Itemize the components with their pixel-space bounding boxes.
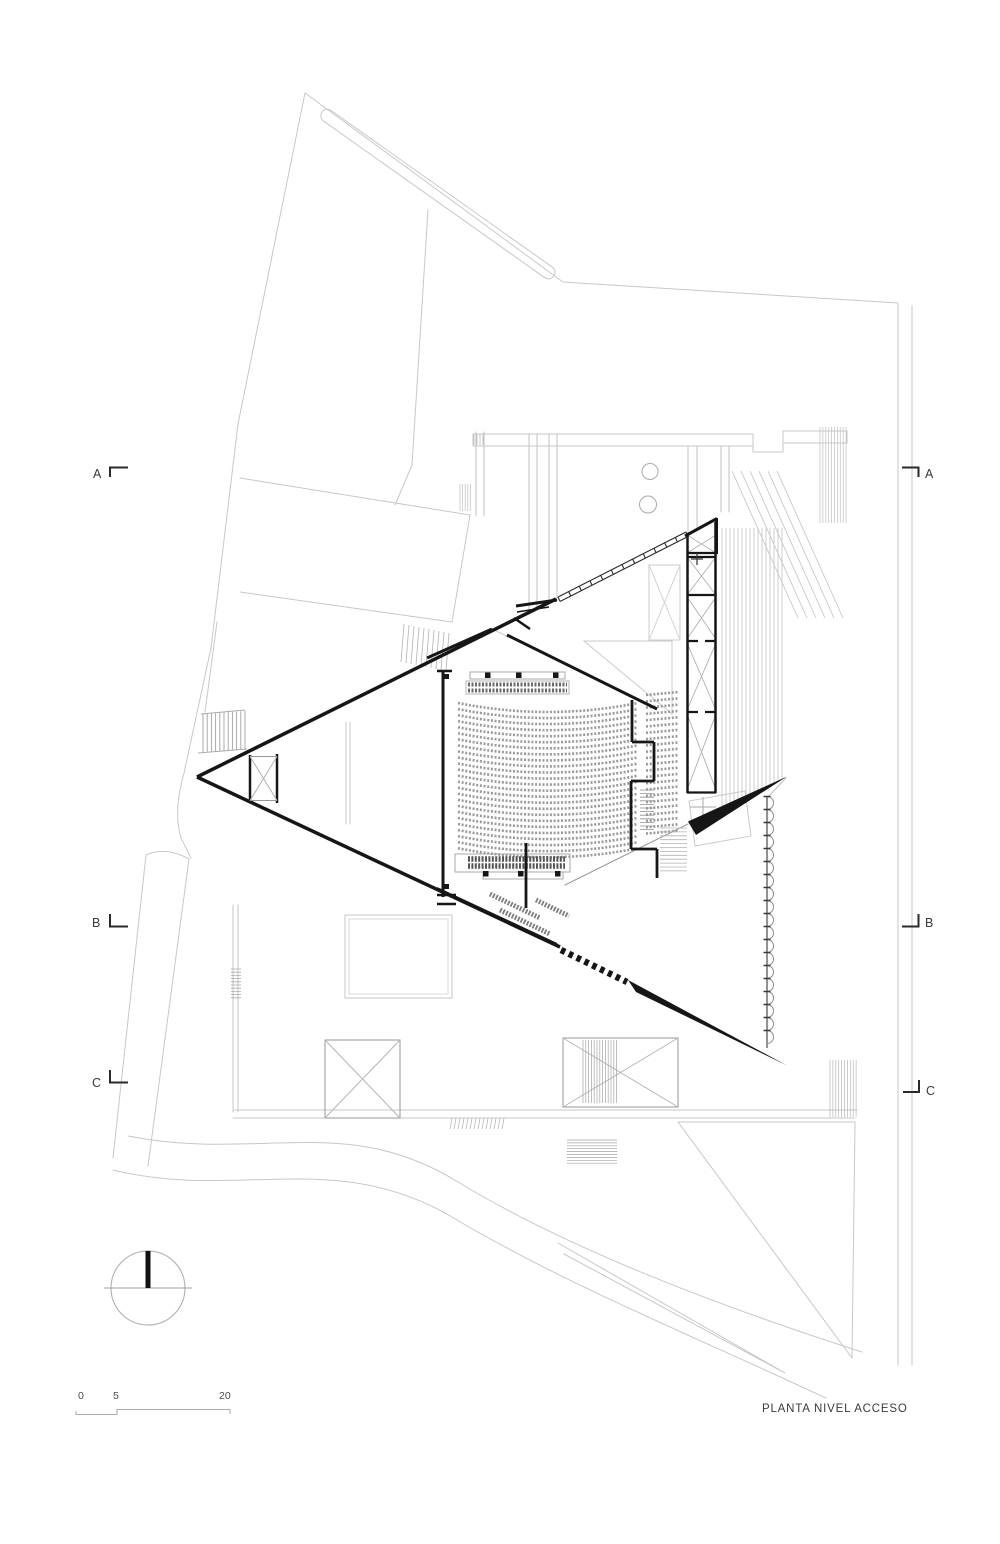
scale-bar: 0 5 20 [76,1390,231,1415]
foyer-stair [536,900,569,916]
section-cut-mark-b-left [110,914,128,927]
site-stair-rails [198,710,247,753]
section-label-c-right: C [926,1084,935,1098]
site-boundary-left [178,93,305,858]
auditorium-roofline-left [427,629,492,658]
wall-band-bracing [687,535,716,790]
generated-textures [203,427,856,1163]
seating-rows-side [646,692,679,834]
foyer-stair [490,894,540,918]
floor-plan-canvas: A A B B C C 0 5 20 PLANTA NIVEL ACCESO [0,0,1000,1544]
scale-bar-line [76,1410,230,1415]
road-curve-1 [128,1136,862,1352]
road-strip [113,851,189,1166]
dashed-edge-segment [561,950,627,982]
seating-rows [458,703,638,857]
building-bold-walls [197,518,787,1066]
secondary-structures [198,629,767,1118]
ramp-wedge [558,1243,785,1373]
plan-title: PLANTA NIVEL ACCESO [762,1403,908,1415]
section-label-c-left: C [92,1076,101,1090]
site-plan-lines [113,93,912,1398]
section-cut-mark-c-left [110,1070,128,1083]
section-label-b-left: B [92,916,100,930]
site-path-stripe [318,107,557,282]
section-cut-mark-a-left [110,468,128,478]
site-boundary-right [898,303,912,1365]
right-band-hatch-top [820,427,846,523]
plaza-strip-hatch [450,1118,504,1129]
skylight-square [345,915,452,998]
door-swing-arcs [767,797,774,1044]
drawing-sheet: A A B B C C 0 5 20 PLANTA NIVEL ACCESO [0,0,1000,1544]
north-arrow [104,1251,192,1325]
column-circle [642,464,658,480]
pavilion-stair-hatch [583,1040,617,1103]
boh-vertical-hatch [722,528,782,808]
section-cut-mark-b-right [902,914,919,927]
plaza-edges [233,905,857,1118]
small-shaft-hatch [460,484,470,511]
scale-label-0: 0 [78,1390,84,1402]
column-circle [640,496,657,513]
section-cut-mark-c-right [903,1080,919,1092]
section-label-b-right: B [925,916,933,930]
section-label-a-left: A [93,467,102,481]
canopy-diagonals [732,471,843,618]
lower-wedge [628,980,787,1066]
site-boundary-top [305,93,898,303]
lower-stair-hatch [567,1140,617,1163]
site-stair-rungs [203,711,245,752]
right-band-hatch-bottom [830,1060,856,1117]
section-label-a-right: A [925,467,934,481]
scale-label-20: 20 [219,1390,231,1402]
section-cut-mark-a-right [902,468,919,478]
esplanade [240,478,470,622]
stair-under-band [660,828,687,871]
lower-terrace-triangle [678,1122,855,1358]
scale-label-5: 5 [113,1390,119,1402]
triangle-top-edge [197,599,556,777]
road-curve-2 [113,1170,826,1398]
triangle-bottom-edge [197,777,560,947]
band-ticks [474,434,483,445]
edge-stair-rungs [558,532,688,601]
